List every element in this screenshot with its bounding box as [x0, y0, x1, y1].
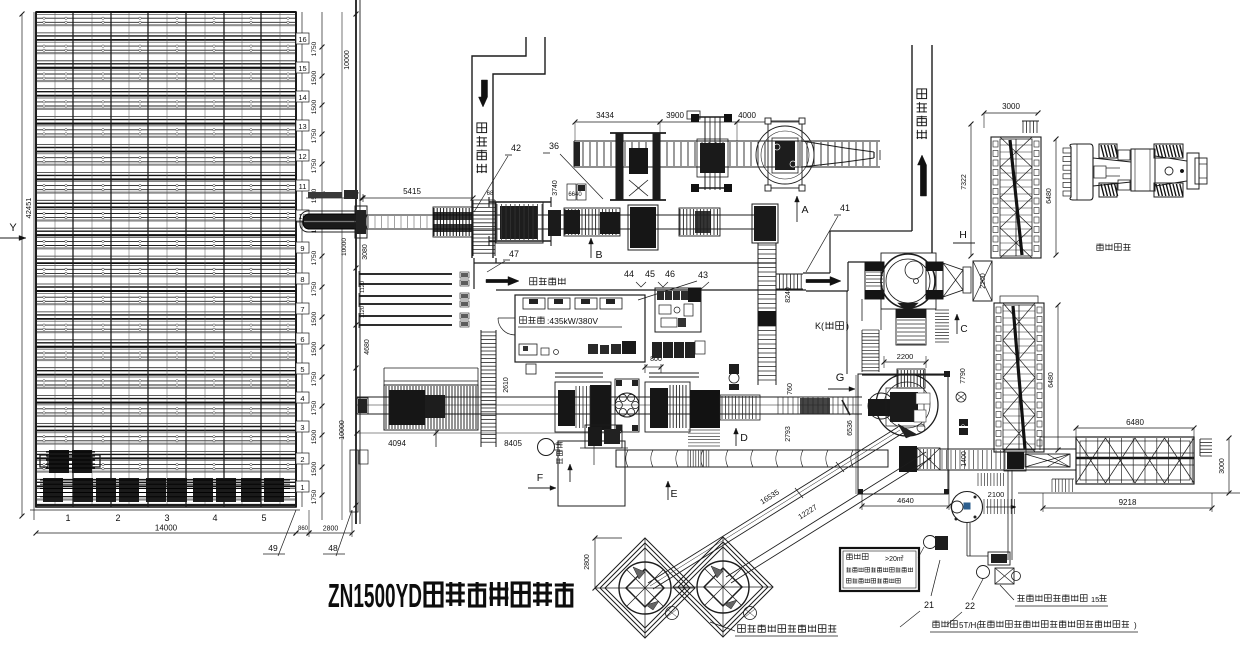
svg-text:42: 42 — [511, 143, 521, 153]
svg-text:1120: 1120 — [360, 281, 366, 293]
svg-text:3900: 3900 — [666, 111, 684, 120]
svg-text:42451: 42451 — [24, 198, 33, 219]
svg-text:ZN1500YD: ZN1500YD — [328, 577, 422, 614]
svg-text:36: 36 — [549, 141, 559, 151]
svg-text:F: F — [537, 472, 543, 484]
svg-text:2610: 2610 — [503, 377, 510, 393]
svg-text:K(: K( — [815, 321, 824, 331]
svg-text:4094: 4094 — [388, 439, 406, 448]
svg-text:Y: Y — [9, 222, 17, 234]
svg-text:15: 15 — [1091, 595, 1099, 604]
svg-text:10000: 10000 — [339, 420, 346, 440]
svg-text:3434: 3434 — [596, 111, 614, 120]
svg-text:C: C — [960, 324, 967, 335]
svg-text:2793: 2793 — [785, 426, 792, 442]
svg-text:8240: 8240 — [785, 287, 792, 303]
svg-text:12: 12 — [298, 152, 306, 161]
svg-text:10000: 10000 — [341, 238, 348, 256]
svg-text:2: 2 — [300, 455, 304, 464]
svg-text:43: 43 — [698, 270, 708, 280]
svg-text:4640: 4640 — [897, 496, 914, 505]
svg-text:H: H — [959, 229, 967, 241]
svg-text:3000: 3000 — [1002, 102, 1020, 111]
svg-text:2: 2 — [115, 513, 120, 523]
svg-text:49: 49 — [268, 543, 278, 553]
svg-text:5T/H(: 5T/H( — [959, 621, 979, 630]
svg-text:1750: 1750 — [311, 489, 318, 504]
svg-text:1500: 1500 — [311, 461, 318, 476]
svg-text:1750: 1750 — [311, 371, 318, 386]
svg-text:1500: 1500 — [311, 70, 318, 85]
svg-text:): ) — [1134, 621, 1137, 630]
svg-text:5415: 5415 — [403, 187, 421, 196]
svg-text:1750: 1750 — [311, 41, 318, 56]
svg-text:3080: 3080 — [362, 244, 369, 260]
svg-text:5: 5 — [300, 365, 304, 374]
svg-text:4: 4 — [300, 394, 304, 403]
svg-text:9218: 9218 — [1119, 498, 1137, 507]
svg-text:2100: 2100 — [988, 490, 1005, 499]
svg-text:3000: 3000 — [1219, 458, 1226, 474]
svg-text:760: 760 — [787, 383, 794, 395]
svg-text:15: 15 — [298, 64, 306, 73]
svg-text:1750: 1750 — [311, 400, 318, 415]
svg-text:2200: 2200 — [980, 273, 987, 289]
svg-text:1750: 1750 — [311, 281, 318, 296]
svg-text:6480: 6480 — [1048, 372, 1055, 388]
svg-text:10000: 10000 — [344, 50, 351, 70]
svg-text:6: 6 — [300, 335, 304, 344]
svg-text:11: 11 — [299, 182, 307, 191]
svg-text:1500: 1500 — [311, 429, 318, 444]
svg-text:1: 1 — [300, 483, 304, 492]
svg-text:2800: 2800 — [323, 526, 339, 533]
svg-text:3: 3 — [164, 513, 169, 523]
svg-text:6640: 6640 — [568, 192, 582, 198]
svg-text:4680: 4680 — [364, 339, 371, 355]
svg-text:A: A — [801, 204, 808, 216]
svg-text:6480: 6480 — [1046, 188, 1053, 204]
svg-text:9: 9 — [300, 244, 304, 253]
svg-text::435kW/380V: :435kW/380V — [547, 316, 598, 326]
svg-text:4000: 4000 — [738, 111, 756, 120]
svg-text:1750: 1750 — [311, 128, 318, 143]
svg-text:14: 14 — [298, 93, 306, 102]
svg-text:4: 4 — [212, 513, 217, 523]
svg-text:1500: 1500 — [311, 99, 318, 114]
svg-text:E: E — [670, 488, 677, 500]
svg-text:48: 48 — [328, 543, 338, 553]
svg-text:2200: 2200 — [897, 352, 914, 361]
svg-text:6536: 6536 — [847, 420, 854, 436]
svg-text:6480: 6480 — [1126, 418, 1144, 427]
svg-text:46: 46 — [665, 269, 675, 279]
svg-text:16: 16 — [298, 35, 306, 44]
svg-text:1500: 1500 — [311, 311, 318, 326]
svg-text:1500: 1500 — [311, 341, 318, 356]
svg-text:1400: 1400 — [961, 451, 968, 467]
svg-text:860: 860 — [298, 526, 309, 532]
svg-text:1750: 1750 — [311, 250, 318, 265]
svg-text:8405: 8405 — [504, 439, 522, 448]
svg-text:3740: 3740 — [552, 180, 559, 196]
svg-text:1750: 1750 — [311, 158, 318, 173]
svg-text:D: D — [740, 432, 748, 444]
svg-text:B: B — [595, 249, 602, 261]
svg-text:47: 47 — [509, 249, 519, 259]
svg-text:44: 44 — [624, 269, 634, 279]
svg-text:1: 1 — [65, 513, 70, 523]
svg-text:7322: 7322 — [961, 174, 968, 190]
svg-text:45: 45 — [645, 269, 655, 279]
svg-text:G: G — [836, 372, 845, 384]
svg-text:8: 8 — [300, 275, 304, 284]
svg-text:68: 68 — [487, 191, 494, 197]
svg-text:22: 22 — [965, 601, 975, 611]
svg-text:13: 13 — [298, 122, 306, 131]
svg-text:7790: 7790 — [960, 368, 967, 384]
svg-text:3: 3 — [300, 423, 304, 432]
svg-text:7: 7 — [300, 305, 304, 314]
svg-text:5: 5 — [261, 513, 266, 523]
svg-text:2800: 2800 — [584, 554, 591, 570]
svg-text:21: 21 — [924, 600, 934, 610]
svg-text:41: 41 — [840, 203, 850, 213]
svg-text:14000: 14000 — [155, 524, 178, 533]
